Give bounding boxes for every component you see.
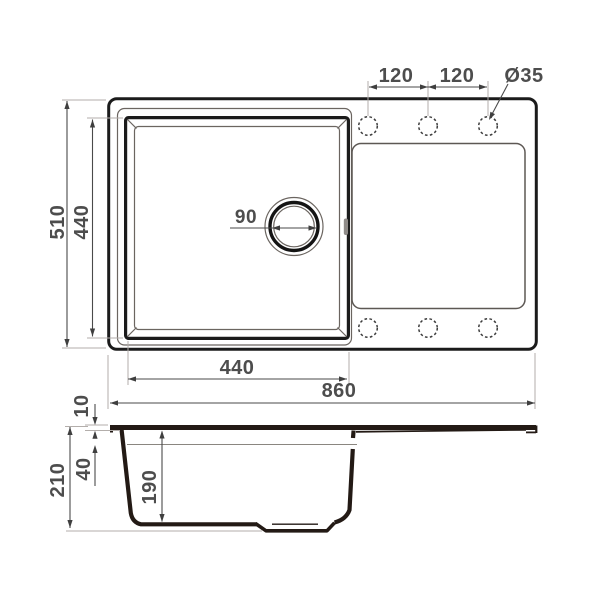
- sink-dimension-drawing: 120 120 Ø35 510 440 90 440: [0, 0, 600, 600]
- dim-hole-spacing-2: 120: [440, 65, 475, 87]
- dim-upper-depth: 40: [73, 457, 95, 480]
- bowl-section-right-wall: [335, 449, 353, 523]
- dim-drain-diameter: 90: [235, 207, 257, 228]
- drawing-canvas: 120 120 Ø35 510 440 90 440: [0, 0, 600, 600]
- dim-bowl-width: 440: [220, 357, 255, 379]
- dim-hole-spacing-1: 120: [379, 65, 414, 87]
- faucet-hole: [479, 117, 498, 136]
- side-view: [66, 426, 536, 532]
- faucet-hole: [479, 319, 498, 338]
- faucet-hole: [359, 117, 378, 136]
- faucet-hole: [419, 117, 438, 136]
- side-view-dimensions: 210 10 40 190: [47, 394, 165, 528]
- faucet-hole: [419, 319, 438, 338]
- faucet-hole: [359, 319, 378, 338]
- overflow-notch: [344, 219, 348, 236]
- top-view: [109, 99, 537, 350]
- drainboard-outline: [352, 144, 525, 309]
- dim-bowl-inner-depth: 190: [139, 470, 161, 505]
- dim-overall-depth: 510: [47, 205, 69, 240]
- dim-bowl-depth: 440: [71, 205, 93, 240]
- dim-total-height: 210: [47, 463, 69, 498]
- dim-hole-diameter: Ø35: [504, 65, 543, 87]
- dim-overall-width: 860: [322, 380, 357, 402]
- drainboard-underside-line: [356, 430, 526, 432]
- dim-rim-thickness: 10: [71, 394, 93, 417]
- faucet-holes: [359, 117, 498, 338]
- drain-hole: [265, 198, 323, 256]
